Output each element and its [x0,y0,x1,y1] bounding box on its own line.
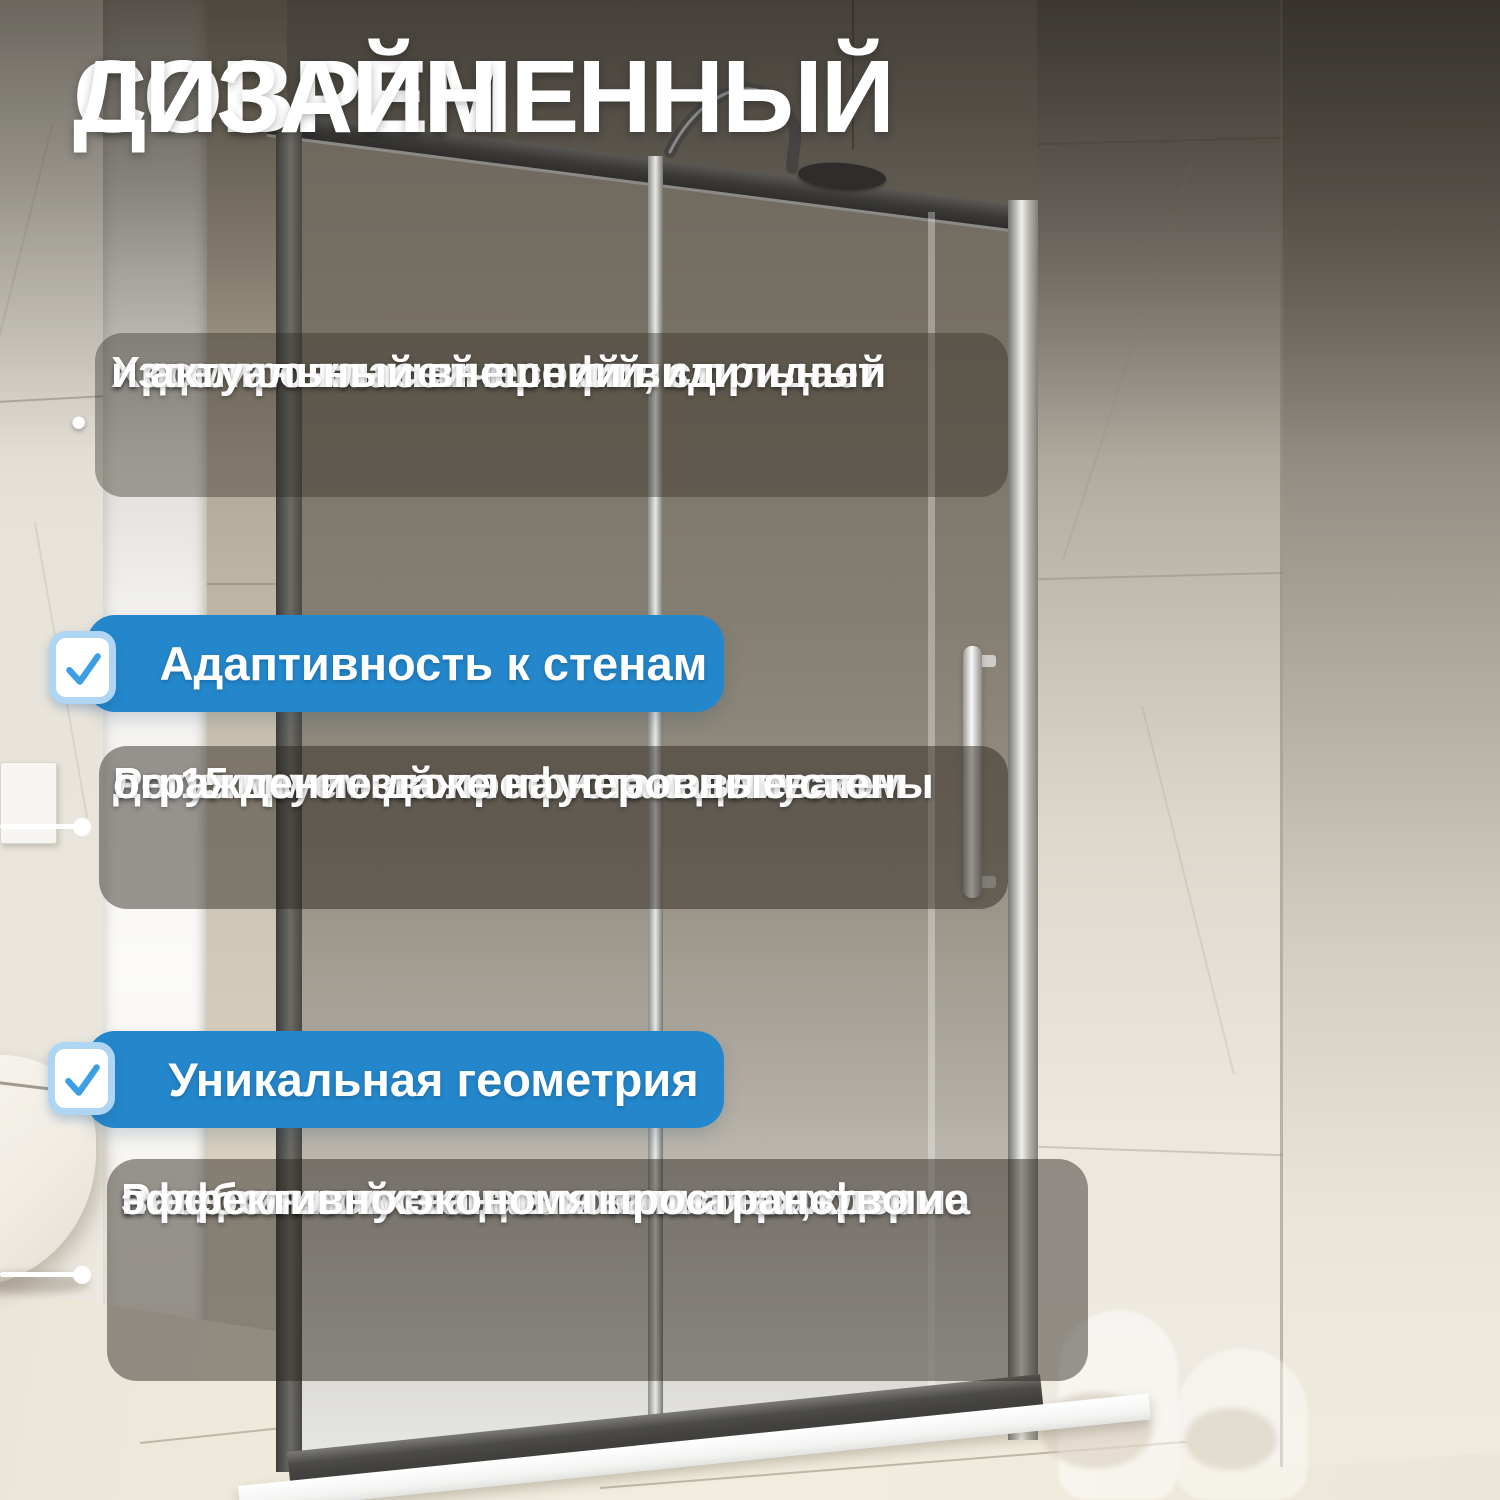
callout-dot [73,1266,91,1284]
title-line: ДИЗАЙН [73,50,496,144]
feature-heading-label: Адаптивность к стенам [160,636,708,691]
light-switch [0,762,57,844]
callout-line [0,1272,76,1277]
check-icon [62,647,104,689]
feature-description-panel: Регулируемый профиль с допуском до 15 мм… [99,746,1008,909]
feature-heading-adaptivnost: Адаптивность к стенам [87,615,724,712]
feature-checkbox [48,1042,115,1115]
intro-line: и актуальный внешний вид [111,344,716,401]
bullet-point: • [71,398,86,448]
callout-dot [73,818,91,836]
vase-shadow [1185,1408,1277,1470]
callout-line [0,824,76,829]
feature-description-line: ограждение даже на неровные стены [113,755,934,812]
product-infographic: СОВРЕМЕННЫЙ ДИЗАЙН Хромированный профиль… [0,0,1500,1500]
intro-text-panel: Хромированный профиль придает изделию кл… [95,333,1008,497]
feature-heading-label: Уникальная геометрия [168,1052,698,1107]
feature-checkbox [49,631,116,704]
feature-description-panel: Раздвижной вход и компактная форма позво… [107,1159,1088,1381]
feature-description-line: эффективно экономя пространство [121,1171,909,1228]
feature-heading-geometriya: Уникальная геометрия [87,1031,724,1128]
check-icon [61,1058,103,1100]
